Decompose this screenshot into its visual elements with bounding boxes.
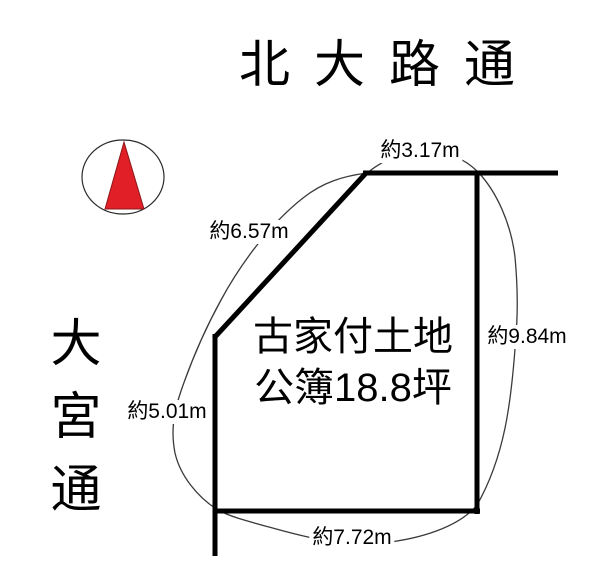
dimension-right: 約9.84m bbox=[484, 325, 569, 349]
dimension-bottom: 約7.72m bbox=[309, 526, 394, 550]
land-plot-diagram: 北大路通 大宮通 古家付土地 公簿18.8坪 約3.17m 約6.57m 約9.… bbox=[0, 0, 600, 584]
parcel-description: 古家付土地 公簿18.8坪 bbox=[253, 312, 453, 414]
parcel-description-line2: 公簿18.8坪 bbox=[253, 363, 453, 414]
dimension-diagonal: 約6.57m bbox=[206, 220, 291, 244]
north-compass bbox=[82, 140, 164, 214]
dimension-left: 約5.01m bbox=[124, 400, 209, 424]
parcel-description-line1: 古家付土地 bbox=[253, 312, 453, 363]
street-name-kitaoji: 北大路通 bbox=[239, 36, 539, 94]
dimension-top: 約3.17m bbox=[377, 139, 462, 163]
street-name-omiya: 大宮通 bbox=[34, 316, 108, 535]
